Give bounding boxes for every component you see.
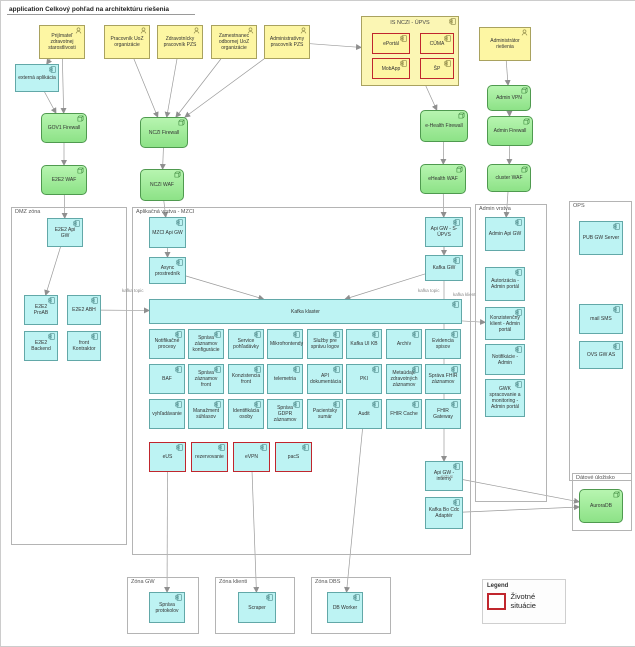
node-label: NCZI WAF bbox=[143, 182, 181, 188]
component-icon bbox=[613, 223, 620, 230]
ls-rezervovanie[interactable]: rezervovanie bbox=[191, 442, 228, 472]
component-icon bbox=[451, 331, 458, 338]
actor-administrativny[interactable]: Administratívny pracovník PZS bbox=[264, 25, 310, 59]
component-icon bbox=[515, 219, 522, 226]
component-icon bbox=[613, 306, 620, 313]
node-label: Audit bbox=[349, 411, 379, 417]
sluzby-pre-spravu-logov[interactable]: Služby pre správu logov bbox=[307, 329, 343, 359]
node-label: Mikrofrontendy bbox=[270, 341, 300, 347]
component-icon bbox=[515, 269, 522, 276]
component-icon bbox=[254, 366, 261, 373]
component-icon bbox=[613, 343, 620, 350]
node-icon bbox=[77, 115, 84, 122]
e2e2-proab[interactable]: E2E2 ProAB bbox=[24, 295, 58, 325]
node-label: Pacientsky sumár bbox=[310, 408, 340, 420]
baf[interactable]: BAF bbox=[149, 364, 185, 394]
node-label: Service pohľadávky bbox=[231, 338, 261, 350]
ls-eus[interactable]: eUS bbox=[149, 442, 186, 472]
ehealth-waf[interactable]: eHealth WAF bbox=[420, 164, 466, 194]
e2e2-waf[interactable]: E2E2 WAF bbox=[41, 165, 87, 195]
connector bbox=[62, 59, 63, 113]
edge-label: kafka topic bbox=[122, 288, 144, 293]
archiv[interactable]: Archív bbox=[386, 329, 422, 359]
node-label: NCZI Firewall bbox=[143, 130, 185, 136]
container-title: OPS bbox=[573, 203, 585, 209]
component-icon bbox=[175, 594, 182, 601]
manazment-suhlasov[interactable]: Manažment súhlasov bbox=[188, 399, 224, 429]
component-icon bbox=[372, 331, 379, 338]
component-icon bbox=[333, 401, 340, 408]
node-label: Administrátor riešenia bbox=[482, 38, 528, 50]
nczi-firewall[interactable]: NCZI Firewall bbox=[140, 117, 188, 148]
node-label: Api GW - S-ÚPVS bbox=[428, 226, 460, 238]
front-kontraktor[interactable]: front Kontraktor bbox=[67, 331, 101, 361]
container-title: Zóna GW bbox=[131, 579, 155, 585]
component-icon bbox=[260, 444, 267, 451]
node-label: E2E2 Api GW bbox=[50, 227, 80, 239]
connector bbox=[176, 59, 221, 117]
e2e2-api-gw[interactable]: E2E2 Api GW bbox=[47, 218, 83, 247]
node-label: Prijímateľ zdravotnej starostlivosti bbox=[42, 33, 82, 51]
business-actor-icon bbox=[300, 27, 307, 34]
kafka-bo-cdc-adapter[interactable]: Kafka Bo Cdc Adaptér bbox=[425, 497, 463, 529]
life-situation-swatch bbox=[487, 593, 506, 610]
evidencia-spisov[interactable]: Evidencia spisov bbox=[425, 329, 461, 359]
container-title: DMZ zóna bbox=[15, 209, 40, 215]
node-icon bbox=[521, 87, 528, 94]
container-title: Dátové úložisko bbox=[576, 475, 615, 481]
component-icon bbox=[175, 366, 182, 373]
konzistencny-klient-admin-portal[interactable]: Konzistenčný klient - Admin portál bbox=[485, 307, 525, 340]
component-icon bbox=[515, 346, 522, 353]
fhir-cache[interactable]: FHIR Cache bbox=[386, 399, 422, 429]
nczi-waf[interactable]: NCZI WAF bbox=[140, 169, 184, 201]
container-title: Zóna DBS bbox=[315, 579, 340, 585]
node-label: Administratívny pracovník PZS bbox=[267, 36, 307, 48]
pki[interactable]: PKI bbox=[346, 364, 382, 394]
connector bbox=[310, 44, 361, 48]
node-label: telemetria bbox=[270, 376, 300, 382]
component-icon bbox=[266, 594, 273, 601]
component-icon bbox=[453, 499, 460, 506]
node-label: AuroraDB bbox=[582, 503, 620, 509]
component-icon bbox=[254, 331, 261, 338]
node-label: Autorizácia - Admin portál bbox=[488, 278, 522, 290]
node-label: API dokumentácia bbox=[310, 373, 340, 385]
business-actor-icon bbox=[140, 27, 147, 34]
node-label: mail SMS bbox=[582, 316, 620, 322]
admin-firewall[interactable]: Admin Firewall bbox=[487, 116, 533, 146]
node-icon bbox=[178, 119, 185, 126]
legend-item-label: Životné situácie bbox=[511, 592, 561, 610]
business-actor-icon bbox=[193, 27, 200, 34]
node-label: E2E2 Backend bbox=[27, 340, 55, 352]
actor-zamestnanec-odbornej[interactable]: Zamestnanec odbornej UoZ organizácie bbox=[211, 25, 257, 59]
cluster-waf[interactable]: cluster WAF bbox=[487, 164, 531, 192]
legend-title: Legend bbox=[487, 583, 561, 589]
autorizacia-admin-portal[interactable]: Autorizácia - Admin portál bbox=[485, 267, 525, 301]
component-icon bbox=[451, 401, 458, 408]
ovs-gw-as[interactable]: OVS GW AS bbox=[579, 341, 623, 369]
node-label: Zamestnanec odbornej UoZ organizácie bbox=[214, 33, 254, 51]
node-label: Správa FHIR záznamov bbox=[428, 373, 458, 385]
konzistencia-front[interactable]: Konzistencia front bbox=[228, 364, 264, 394]
node-label: GOV1 Firewall bbox=[44, 125, 84, 131]
db-worker[interactable]: DB Worker bbox=[327, 592, 363, 623]
node-label: Notifikačné procesy bbox=[152, 338, 182, 350]
audit[interactable]: Audit bbox=[346, 399, 382, 429]
node-label: DB Worker bbox=[330, 605, 360, 611]
node-icon bbox=[613, 491, 620, 498]
ls-evpn[interactable]: eVPN bbox=[233, 442, 270, 472]
admin-api-gw[interactable]: Admin Api GW bbox=[485, 217, 525, 251]
legend-item: Životné situácie bbox=[487, 592, 561, 610]
auroradb[interactable]: AuroraDB bbox=[579, 489, 623, 523]
actor-administrator[interactable]: Administrátor riešenia bbox=[479, 27, 531, 61]
component-icon bbox=[175, 331, 182, 338]
component-icon bbox=[48, 297, 55, 304]
node-icon bbox=[523, 118, 530, 125]
node-label: Notifikácie - Admin bbox=[488, 354, 522, 366]
component-icon bbox=[333, 331, 340, 338]
component-icon bbox=[453, 257, 460, 264]
edge-label: kafka klient bbox=[453, 292, 476, 297]
sprava-fhir-zaznamov[interactable]: Správa FHIR záznamov bbox=[425, 364, 461, 394]
container-title: Zóna klienti bbox=[219, 579, 247, 585]
ls-cuma[interactable]: CÚMA bbox=[420, 33, 454, 54]
ls-pacs[interactable]: pacS bbox=[275, 442, 312, 472]
node-label: Služby pre správu logov bbox=[310, 338, 340, 350]
node-label: rezervovanie bbox=[194, 454, 225, 460]
node-label: Identifikácia osoby bbox=[231, 408, 261, 420]
container-title: Admin vrstva bbox=[479, 206, 511, 212]
node-label: Správa záznamov konfigurácie bbox=[191, 335, 221, 353]
mikrofrontendy[interactable]: Mikrofrontendy bbox=[267, 329, 303, 359]
component-icon bbox=[452, 301, 459, 308]
ls-mobapp[interactable]: MobApp bbox=[372, 58, 410, 79]
node-label: Správa protokolov bbox=[152, 602, 182, 614]
node-label: Evidencia spisov bbox=[428, 338, 458, 350]
scraper[interactable]: Scraper bbox=[238, 592, 276, 623]
node-label: Kafka GW bbox=[428, 265, 460, 271]
sprava-zaznamov-front[interactable]: Správa záznamov front bbox=[188, 364, 224, 394]
async-prostrednik[interactable]: Async prostredník bbox=[149, 257, 186, 284]
node-label: FHIR Gateway bbox=[428, 408, 458, 420]
component-icon bbox=[91, 297, 98, 304]
node-label: Zdravotnícky pracovník PZS bbox=[160, 36, 200, 48]
api-dokumentacia[interactable]: API dokumentácia bbox=[307, 364, 343, 394]
node-label: Kafka klaster bbox=[152, 309, 459, 315]
metaudaje-zdravotnych-zaznamov[interactable]: Metaúdaje zdravotných záznamov bbox=[386, 364, 422, 394]
kafka-gw[interactable]: Kafka GW bbox=[425, 255, 463, 281]
business-actor-icon bbox=[521, 29, 528, 36]
component-icon bbox=[218, 444, 225, 451]
component-icon bbox=[91, 333, 98, 340]
e2e2-abh[interactable]: E2E2 ABH bbox=[67, 295, 101, 325]
connector bbox=[426, 86, 437, 110]
fhir-gateway[interactable]: FHIR Gateway bbox=[425, 399, 461, 429]
diagram-canvas[interactable]: application Celkový pohľad na architektú… bbox=[0, 0, 635, 647]
component-icon bbox=[302, 444, 309, 451]
node-label: IS NCZI - ÚPVS bbox=[364, 20, 456, 27]
connector bbox=[185, 59, 264, 117]
node-label: eUS bbox=[152, 454, 183, 460]
actor-prijimatel[interactable]: Prijímateľ zdravotnej starostlivosti bbox=[39, 25, 85, 59]
component-icon bbox=[48, 333, 55, 340]
connector bbox=[163, 148, 164, 169]
sprava-protokolov[interactable]: Správa protokolov bbox=[149, 592, 185, 623]
diagram-title: application Celkový pohľad na architektú… bbox=[7, 5, 195, 15]
notifikacne-procesy[interactable]: Notifikačné procesy bbox=[149, 329, 185, 359]
pacientsky-sumar[interactable]: Pacientsky sumár bbox=[307, 399, 343, 429]
actor-pracovnik-uoz[interactable]: Pracovník UoZ organizácie bbox=[104, 25, 150, 59]
node-label: eVPN bbox=[236, 454, 267, 460]
node-label: Konzistencia front bbox=[231, 373, 261, 385]
sprava-gdpr-zaznamov[interactable]: Správa GDPR záznamov bbox=[267, 399, 303, 429]
telemetria[interactable]: telemetria bbox=[267, 364, 303, 394]
node-label: BAF bbox=[152, 376, 182, 382]
component-icon bbox=[372, 366, 379, 373]
node-label: Archív bbox=[389, 341, 419, 347]
gwk-spracovanie-admin-portal[interactable]: GWK spracovanie a monitoring - Admin por… bbox=[485, 379, 525, 417]
edge-label: mTLS bbox=[441, 474, 453, 479]
node-label: PKI bbox=[349, 376, 379, 382]
node-label: MZCI Api GW bbox=[152, 230, 183, 236]
component-icon bbox=[412, 401, 419, 408]
node-label: CÚMA bbox=[423, 41, 451, 47]
node-icon bbox=[174, 171, 181, 178]
node-label: vyhľadávanie bbox=[152, 411, 182, 417]
node-label: Kafka UI KB bbox=[349, 341, 379, 347]
node-icon bbox=[77, 167, 84, 174]
sprava-zaznamov-konfiguracie[interactable]: Správa záznamov konfigurácie bbox=[188, 329, 224, 359]
gov1-firewall[interactable]: GOV1 Firewall bbox=[41, 113, 87, 143]
node-label: FHIR Cache bbox=[389, 411, 419, 417]
legend: Legend Životné situácie bbox=[482, 579, 566, 624]
pub-gw-server[interactable]: PUB GW Server bbox=[579, 221, 623, 255]
node-label: Metaúdaje zdravotných záznamov bbox=[389, 370, 419, 388]
dmz-zona[interactable]: DMZ zóna bbox=[11, 207, 127, 545]
node-label: Pracovník UoZ organizácie bbox=[107, 36, 147, 48]
component-icon bbox=[293, 331, 300, 338]
node-label: Kafka Bo Cdc Adaptér bbox=[428, 507, 460, 519]
connector bbox=[134, 59, 158, 117]
node-label: front Kontraktor bbox=[70, 340, 98, 352]
node-label: Async prostredník bbox=[152, 265, 183, 277]
component-icon bbox=[176, 444, 183, 451]
node-label: E2E2 ProAB bbox=[27, 304, 55, 316]
node-label: ŠP bbox=[423, 66, 451, 72]
node-label: cluster WAF bbox=[490, 175, 528, 181]
e2e2-backend[interactable]: E2E2 Backend bbox=[24, 331, 58, 361]
ls-sp[interactable]: ŠP bbox=[420, 58, 454, 79]
component-icon bbox=[453, 219, 460, 226]
component-icon bbox=[453, 463, 460, 470]
kafka-klaster[interactable]: Kafka klaster bbox=[149, 299, 462, 324]
node-label: E2E2 WAF bbox=[44, 177, 84, 183]
container-title: Aplikačná vrstva - MZCI bbox=[136, 209, 194, 215]
node-label: e-Health Firewall bbox=[423, 123, 465, 129]
ehealth-firewall[interactable]: e-Health Firewall bbox=[420, 110, 468, 142]
node-icon bbox=[458, 112, 465, 119]
connector bbox=[45, 92, 56, 113]
component-icon bbox=[175, 401, 182, 408]
connector bbox=[167, 59, 177, 117]
node-label: Scraper bbox=[241, 605, 273, 611]
connector bbox=[506, 61, 508, 85]
component-icon bbox=[353, 594, 360, 601]
node-label: E2E2 ABH bbox=[70, 307, 98, 313]
node-label: pacS bbox=[278, 454, 309, 460]
component-icon bbox=[49, 66, 56, 73]
vyhladavanie[interactable]: vyhľadávanie bbox=[149, 399, 185, 429]
component-icon bbox=[372, 401, 379, 408]
node-icon bbox=[521, 166, 528, 173]
kafka-ui-kb[interactable]: Kafka UI KB bbox=[346, 329, 382, 359]
node-label: externá aplikácia bbox=[18, 75, 56, 81]
admin-vpn[interactable]: Admin VPN bbox=[487, 85, 531, 111]
node-label: Správa záznamov front bbox=[191, 370, 221, 388]
component-icon bbox=[451, 366, 458, 373]
node-label: ePortál bbox=[375, 41, 407, 47]
node-label: Admin Api GW bbox=[488, 231, 522, 237]
node-icon bbox=[456, 166, 463, 173]
node-label: PUB GW Server bbox=[582, 235, 620, 241]
ls-eportal[interactable]: ePortál bbox=[372, 33, 410, 54]
externa-aplikacia[interactable]: externá aplikácia bbox=[15, 64, 59, 92]
component-icon bbox=[176, 219, 183, 226]
component-icon bbox=[412, 331, 419, 338]
connector bbox=[463, 507, 579, 512]
node-label: Admin VPN bbox=[490, 95, 528, 101]
actor-zdravotnicky-pracovnik[interactable]: Zdravotnícky pracovník PZS bbox=[157, 25, 203, 59]
component-icon bbox=[333, 366, 340, 373]
notifikacie-admin[interactable]: Notifikácie - Admin bbox=[485, 344, 525, 375]
node-label: Manažment súhlasov bbox=[191, 408, 221, 420]
mzci-api-gw[interactable]: MZCI Api GW bbox=[149, 217, 186, 248]
node-label: Konzistenčný klient - Admin portál bbox=[488, 315, 522, 333]
component-icon bbox=[254, 401, 261, 408]
node-label: GWK spracovanie a monitoring - Admin por… bbox=[488, 386, 522, 410]
node-label: MobApp bbox=[375, 66, 407, 72]
node-label: eHealth WAF bbox=[423, 176, 463, 182]
component-icon bbox=[214, 401, 221, 408]
node-label: OVS GW AS bbox=[582, 352, 620, 358]
mail-sms[interactable]: mail SMS bbox=[579, 304, 623, 334]
node-label: Správa GDPR záznamov bbox=[270, 405, 300, 423]
node-label: Admin Firewall bbox=[490, 128, 530, 134]
component-icon bbox=[293, 366, 300, 373]
api-gw-s-upvs[interactable]: Api GW - S-ÚPVS bbox=[425, 217, 463, 247]
identifikacia-osoby[interactable]: Identifikácia osoby bbox=[228, 399, 264, 429]
service-pohladavky[interactable]: Service pohľadávky bbox=[228, 329, 264, 359]
edge-label: kafka topic bbox=[418, 288, 440, 293]
